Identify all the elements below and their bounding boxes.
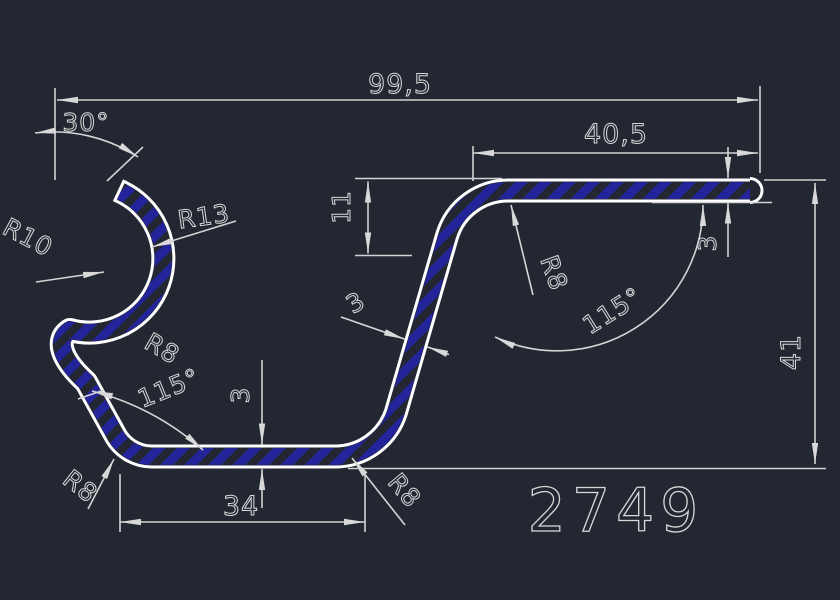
flange-width-label: 40,5 <box>584 119 648 150</box>
tip-angle-label: 30° <box>62 108 109 137</box>
flange-drop-label: 11 <box>327 190 356 224</box>
base-width-label: 34 <box>223 491 259 522</box>
overall-width-label: 99,5 <box>368 69 432 100</box>
overall-height-label: 41 <box>776 334 807 370</box>
cad-drawing-canvas: 99,5 40,5 30° R10 R13 R8 115° 3 41 11 3 … <box>0 0 840 600</box>
cad-viewport[interactable]: 99,5 40,5 30° R10 R13 R8 115° 3 41 11 3 … <box>0 0 840 600</box>
thickness-base-label: 3 <box>226 387 255 404</box>
part-number: 2749 <box>528 476 705 546</box>
thickness-right-label: 3 <box>693 235 722 252</box>
